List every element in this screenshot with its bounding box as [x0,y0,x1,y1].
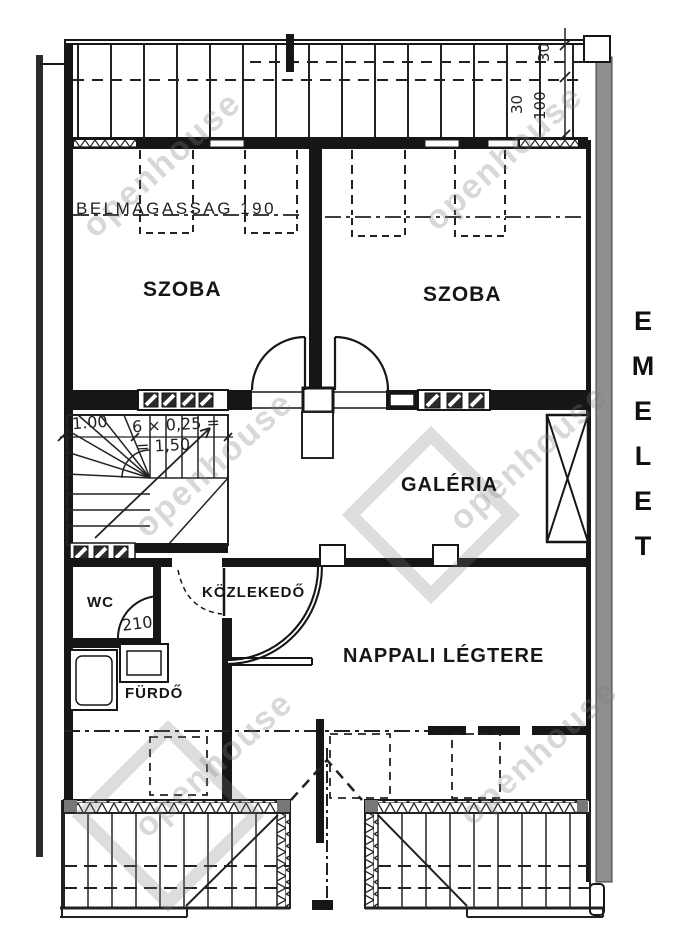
floor-letter: E [634,306,652,336]
dim-stair-result: = 1,50 [136,435,191,457]
room-label-kozlekedo: KÖZLEKEDŐ [202,584,305,601]
ceiling-height-note: BELMAGASSAG 190 [76,199,276,219]
dim-top-right-30b: 30 [535,22,553,62]
szoba-rooms [73,148,586,388]
shower [70,650,117,710]
plan-linework [0,0,680,943]
void-x-box [547,415,588,542]
room-label-szoba-right: SZOBA [423,283,502,307]
room-label-nappali: NAPPALI LÉGTERE [343,645,544,668]
floor-letter: L [635,441,652,471]
floor-letter: E [634,396,652,426]
floor-letter: T [635,531,652,561]
szoba-door-right [335,337,388,390]
railing-posts-right [425,393,484,408]
floor-name-vertical: E M E L E T [626,306,660,561]
gallery-north-wall [73,337,586,412]
roof-slope-zone [64,719,588,910]
floor-letter: M [632,351,655,381]
balcony-right [365,813,603,917]
floorplan-emelet: openhouse openhouse openhouse openhouse … [0,0,680,943]
living-void-curved-wall [228,567,320,665]
dim-top-right-100: 100 [531,80,549,120]
room-label-wc: WC [87,594,114,611]
szoba-door-left [252,337,305,390]
railing-posts-stair [74,546,128,560]
floor-letter: E [634,486,652,516]
dim-top-right-30a: 30 [508,74,526,114]
room-label-galeria: GALÉRIA [401,474,498,497]
sink [120,644,168,682]
dim-door-height: 210 [121,612,154,635]
room-label-furdo: FÜRDŐ [125,685,183,702]
dim-stair-width: 1.00 [71,412,108,433]
balcony-left [60,800,290,917]
room-label-szoba-left: SZOBA [143,278,222,302]
